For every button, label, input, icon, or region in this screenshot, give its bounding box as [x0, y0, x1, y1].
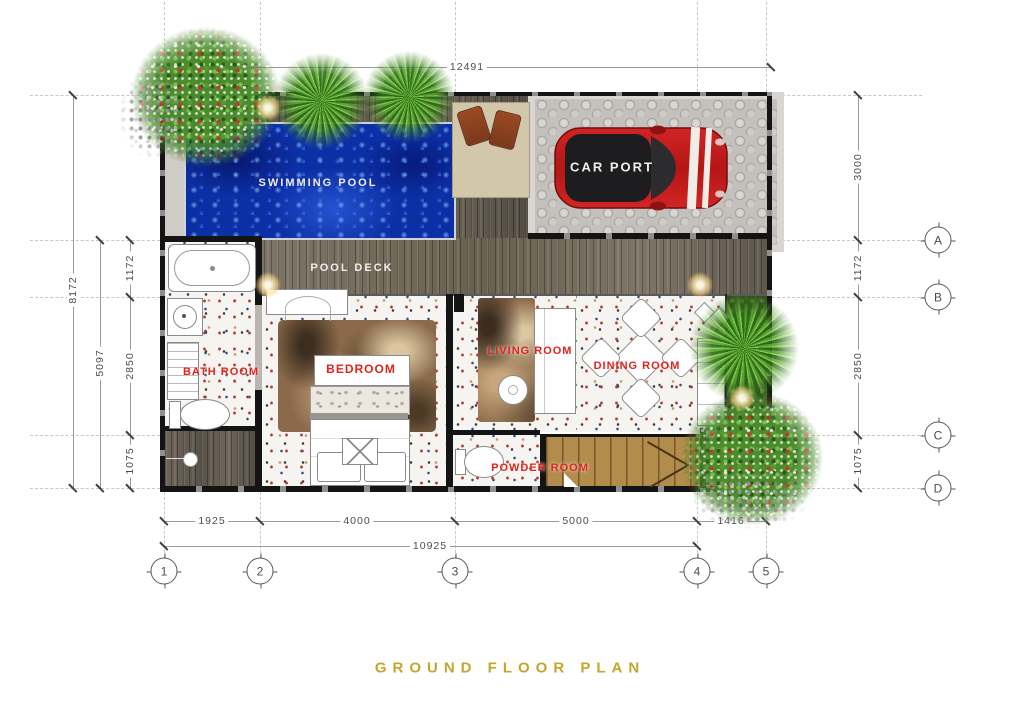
dim-label-bottom-total: 10925: [410, 540, 450, 552]
grid-bubble-row-a: A: [925, 227, 952, 254]
bathroom-label: BATH ROOM: [183, 366, 259, 378]
dim-label-right-bc: 2850: [852, 349, 864, 382]
wall-carport-bottom: [528, 233, 770, 239]
dim-label-right-cd: 1075: [852, 444, 864, 477]
toilet-bowl: [180, 399, 230, 430]
wall-powder-stairs: [540, 434, 546, 487]
stair-direction-arrow: [564, 473, 578, 487]
grid-bubble-col-5: 5: [753, 558, 780, 585]
grid-extension-line: [30, 240, 160, 241]
grid-extension-line: [455, 492, 456, 558]
bedroom-label: BEDROOM: [326, 362, 396, 376]
dim-label-left-ab: 1172: [124, 252, 136, 285]
dimension-line-bottom-segments: [164, 521, 766, 522]
dim-label-left-cd: 1075: [124, 444, 136, 477]
swimming-pool-label: SWIMMING POOL: [259, 177, 378, 189]
grid-bubble-row-b: B: [925, 284, 952, 311]
entry-door-line: [166, 458, 184, 459]
bed-accent-cushion: [342, 438, 378, 465]
sofa: [534, 308, 576, 414]
bed-duvet-band: [310, 386, 410, 415]
wall-nub-living: [454, 294, 464, 312]
tree-gray-branches: [118, 70, 188, 160]
deck-light: [253, 270, 283, 300]
grid-extension-line: [260, 492, 261, 558]
grid-extension-line: [697, 2, 698, 92]
dim-label-left-overall: 8172: [67, 273, 79, 306]
tree-gray-fringe: [690, 470, 810, 530]
palm-tree: [272, 52, 370, 150]
dim-label-right-ab: 1172: [852, 252, 864, 285]
grid-bubble-col-3: 3: [442, 558, 469, 585]
dim-label-bottom-23: 4000: [340, 515, 373, 527]
console-arc: [285, 296, 331, 321]
entry-door-handle: [183, 452, 198, 467]
bathtub-drain: [210, 266, 215, 271]
pool-deck-label: POOL DECK: [310, 262, 393, 274]
palm-tree: [362, 50, 456, 144]
grid-extension-line: [455, 2, 456, 92]
grid-extension-line: [30, 488, 160, 489]
grid-extension-line: [772, 240, 925, 241]
sink: [167, 298, 203, 336]
grid-bubble-col-2: 2: [247, 558, 274, 585]
grid-bubble-row-c: C: [925, 422, 952, 449]
powder-room-label: POWDER ROOM: [491, 462, 589, 474]
sink-drain: [182, 314, 186, 318]
deck-light: [685, 270, 715, 300]
dim-label-bottom-34: 5000: [559, 515, 592, 527]
grid-bubble-row-d: D: [925, 475, 952, 502]
wall-powder-top: [448, 430, 540, 435]
dim-label-left-span: 5097: [94, 346, 106, 379]
dim-label-left-bc: 2850: [124, 349, 136, 382]
living-room-label: LIVING ROOM: [488, 345, 573, 357]
dining-room-label: DINING ROOM: [594, 360, 681, 372]
coffee-table: [498, 375, 528, 405]
wall-bathroom-top: [160, 236, 262, 242]
dim-label-right-top: 3000: [852, 150, 864, 183]
grid-extension-line: [772, 95, 922, 96]
garden-light: [727, 383, 757, 413]
car-port-label: CAR PORT: [570, 160, 654, 175]
entry-deck: [165, 431, 255, 487]
dim-label-bottom-12: 1925: [195, 515, 228, 527]
drawing-title: GROUND FLOOR PLAN: [375, 660, 645, 677]
grid-extension-line: [766, 2, 767, 92]
deck-light: [253, 93, 283, 123]
wall-bottom: [160, 486, 772, 492]
floor-plan-canvas: 12491 8172 5097 1172 2850 1075 3000 1172…: [0, 0, 1020, 720]
wall-bedroom-living: [446, 294, 453, 487]
grid-extension-line: [30, 297, 160, 298]
grid-bubble-col-1: 1: [151, 558, 178, 585]
grid-bubble-col-4: 4: [684, 558, 711, 585]
bathtub: [168, 244, 256, 292]
grid-extension-line: [30, 435, 160, 436]
coffee-table-center: [508, 385, 518, 395]
dim-label-top-total: 12491: [447, 61, 487, 73]
grid-extension-line: [772, 297, 925, 298]
